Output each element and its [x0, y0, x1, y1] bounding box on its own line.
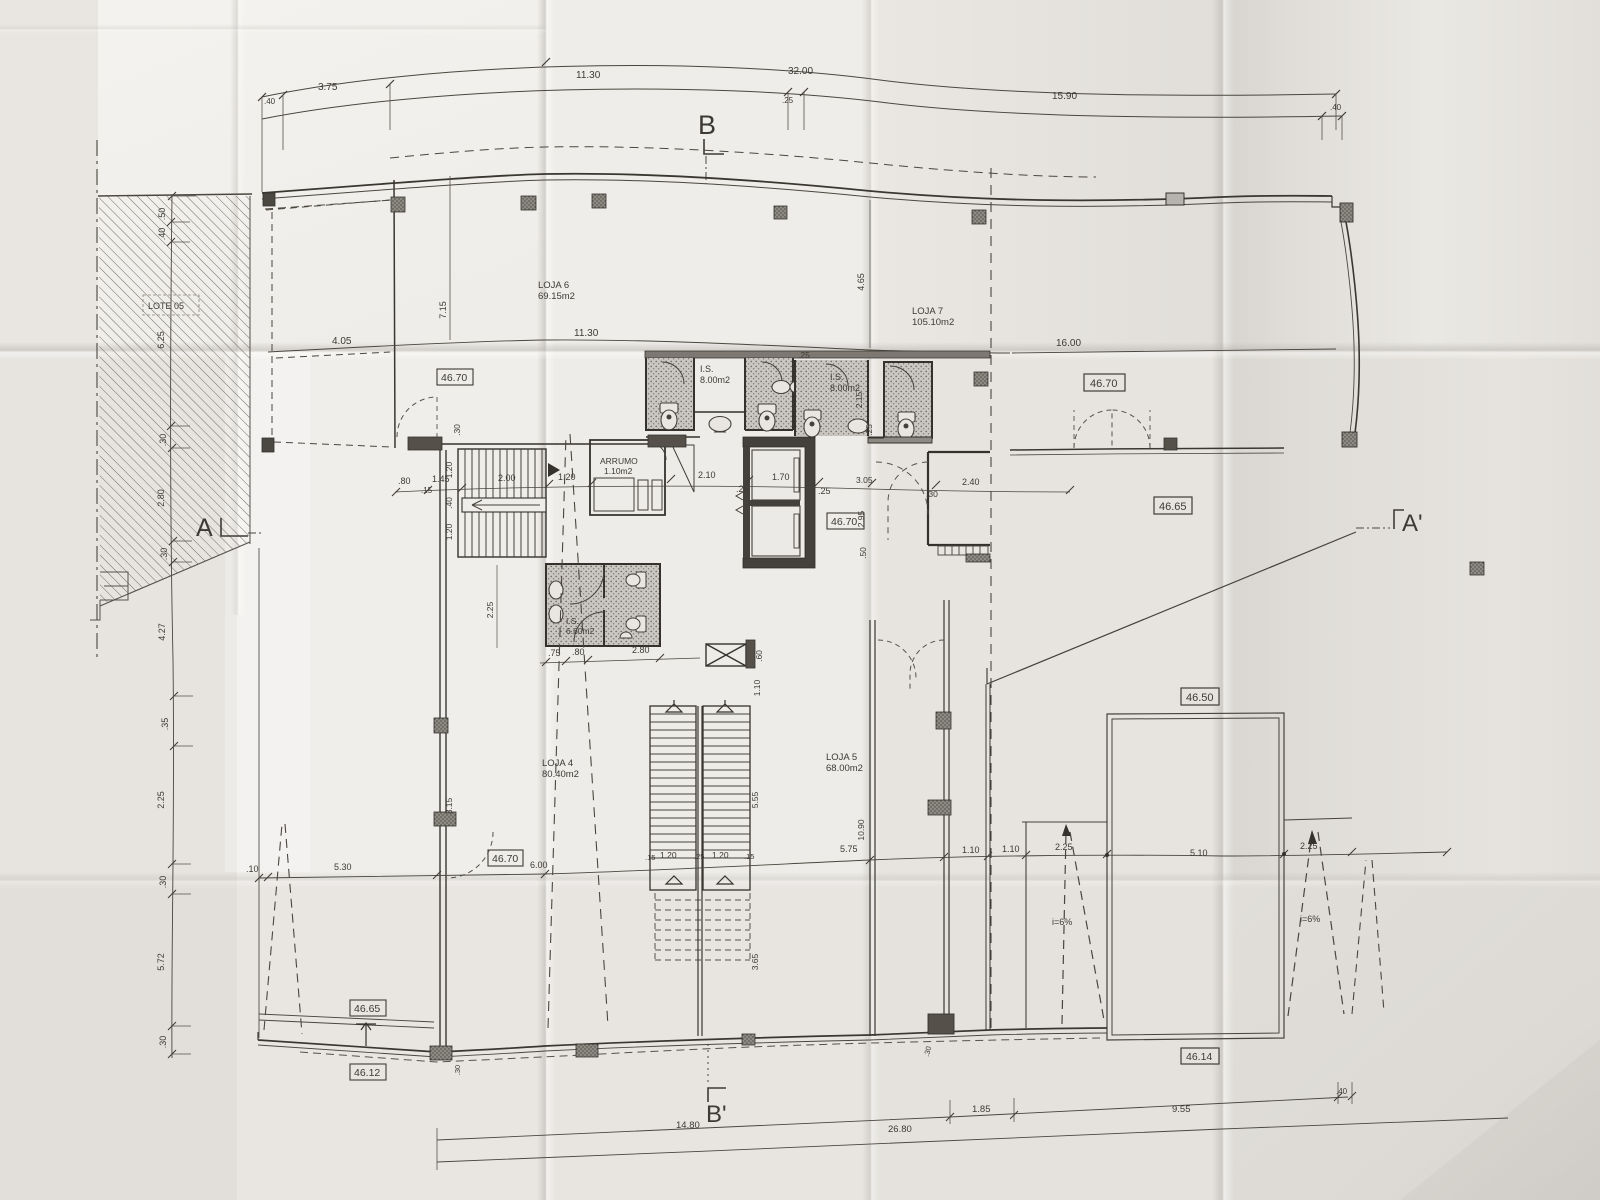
svg-text:5.30: 5.30 — [334, 862, 352, 872]
svg-text:26.80: 26.80 — [888, 1124, 912, 1135]
svg-text:46.70: 46.70 — [441, 372, 467, 384]
svg-text:11.30: 11.30 — [576, 70, 601, 81]
svg-text:6.60m2: 6.60m2 — [566, 626, 595, 636]
svg-text:46.65: 46.65 — [354, 1003, 380, 1015]
svg-text:2.25: 2.25 — [1055, 842, 1073, 852]
svg-text:4.05: 4.05 — [332, 336, 352, 347]
svg-text:68.00m2: 68.00m2 — [826, 763, 863, 774]
svg-text:8.00m2: 8.00m2 — [830, 383, 860, 393]
svg-text:80.40m2: 80.40m2 — [542, 769, 579, 780]
svg-text:.40: .40 — [264, 97, 276, 106]
svg-text:.15: .15 — [421, 486, 433, 495]
svg-text:32.00: 32.00 — [788, 66, 813, 77]
svg-text:2.00: 2.00 — [498, 473, 516, 483]
svg-text:14.80: 14.80 — [676, 1120, 700, 1131]
svg-text:i=6%: i=6% — [1052, 917, 1072, 927]
svg-text:5.75: 5.75 — [840, 844, 858, 854]
svg-text:.40: .40 — [1336, 1087, 1348, 1096]
svg-text:.30: .30 — [158, 1036, 168, 1049]
svg-text:2.25: 2.25 — [485, 601, 495, 618]
svg-text:16.00: 16.00 — [1056, 338, 1081, 349]
svg-text:LOJA 7: LOJA 7 — [912, 306, 943, 317]
svg-text:LOTE 05: LOTE 05 — [148, 301, 184, 311]
svg-text:.80: .80 — [572, 647, 585, 657]
svg-text:.35: .35 — [160, 718, 170, 731]
svg-text:8.00m2: 8.00m2 — [700, 375, 730, 385]
svg-text:1.10: 1.10 — [752, 679, 762, 696]
svg-text:.30: .30 — [452, 424, 462, 436]
svg-text:5.10: 5.10 — [1190, 848, 1208, 858]
svg-text:LOJA 6: LOJA 6 — [538, 280, 569, 291]
svg-text:1.10: 1.10 — [962, 845, 980, 855]
svg-text:2.25: 2.25 — [156, 791, 166, 809]
svg-text:1.10m2: 1.10m2 — [604, 466, 633, 476]
svg-text:.30: .30 — [158, 876, 168, 889]
svg-text:6.25: 6.25 — [156, 331, 166, 349]
svg-text:7.15: 7.15 — [438, 301, 448, 319]
svg-text:.15: .15 — [744, 852, 754, 861]
svg-text:i=6%: i=6% — [1300, 914, 1320, 924]
svg-text:LOJA 4: LOJA 4 — [542, 758, 573, 769]
svg-text:.30: .30 — [926, 489, 938, 499]
svg-text:.30: .30 — [158, 434, 168, 447]
svg-text:1.70: 1.70 — [772, 472, 790, 482]
svg-text:2.95: 2.95 — [856, 510, 866, 527]
svg-text:A: A — [196, 514, 213, 542]
svg-text:2.25: 2.25 — [1300, 841, 1318, 851]
svg-text:46.70: 46.70 — [1090, 378, 1118, 390]
svg-text:.40: .40 — [157, 228, 167, 241]
svg-text:.60: .60 — [754, 650, 764, 662]
svg-text:2.15: 2.15 — [854, 391, 864, 408]
svg-text:I.S.: I.S. — [566, 616, 579, 626]
svg-text:5.55: 5.55 — [750, 791, 760, 808]
svg-text:.80: .80 — [398, 476, 411, 486]
svg-text:1.10: 1.10 — [1002, 844, 1020, 854]
svg-text:LOJA 5: LOJA 5 — [826, 752, 857, 763]
svg-text:1.85: 1.85 — [972, 1104, 991, 1115]
svg-text:11.30: 11.30 — [574, 328, 599, 339]
svg-text:10.90: 10.90 — [856, 819, 866, 841]
svg-text:.30: .30 — [453, 1065, 462, 1075]
svg-text:.25: .25 — [818, 486, 831, 496]
svg-text:5.72: 5.72 — [156, 953, 166, 971]
svg-text:.50: .50 — [157, 208, 167, 221]
svg-text:1.20: 1.20 — [712, 850, 729, 860]
svg-text:.50: .50 — [858, 547, 868, 559]
svg-text:3.05: 3.05 — [856, 475, 873, 485]
svg-text:46.70: 46.70 — [492, 853, 518, 865]
svg-text:I.S.: I.S. — [830, 372, 844, 382]
svg-text:B: B — [698, 110, 716, 140]
svg-text:2.80: 2.80 — [156, 489, 166, 507]
svg-text:B': B' — [706, 1101, 727, 1128]
svg-text:3.65: 3.65 — [750, 953, 760, 970]
svg-text:2.40: 2.40 — [962, 477, 980, 487]
svg-text:3.15: 3.15 — [444, 797, 454, 814]
svg-text:.25: .25 — [782, 96, 794, 105]
svg-text:I.S.: I.S. — [700, 364, 714, 374]
svg-text:4.65: 4.65 — [856, 273, 866, 291]
svg-text:4.27: 4.27 — [157, 623, 167, 641]
svg-text:46.14: 46.14 — [1186, 1051, 1212, 1063]
svg-text:.40: .40 — [1330, 103, 1342, 112]
svg-text:9.55: 9.55 — [1172, 1104, 1191, 1115]
svg-text:.10: .10 — [246, 864, 259, 874]
svg-text:.25: .25 — [736, 484, 749, 494]
svg-text:2.80: 2.80 — [632, 645, 650, 655]
svg-text:.25: .25 — [694, 852, 704, 861]
svg-text:.75: .75 — [548, 648, 561, 658]
svg-text:69.15m2: 69.15m2 — [538, 291, 575, 302]
svg-text:.15: .15 — [645, 853, 655, 862]
svg-text:46.12: 46.12 — [354, 1067, 380, 1079]
svg-text:15.90: 15.90 — [1052, 91, 1077, 102]
svg-text:46.70: 46.70 — [831, 516, 857, 528]
svg-text:A': A' — [1402, 510, 1423, 537]
svg-text:.25: .25 — [798, 350, 810, 360]
svg-text:3.75: 3.75 — [318, 82, 338, 93]
svg-text:1.20: 1.20 — [660, 850, 677, 860]
svg-text:.30: .30 — [159, 548, 169, 561]
svg-text:.25: .25 — [864, 424, 874, 436]
svg-text:ARRUMO: ARRUMO — [600, 456, 638, 466]
svg-text:105.10m2: 105.10m2 — [912, 317, 954, 328]
svg-text:6.00: 6.00 — [530, 860, 548, 870]
svg-text:46.50: 46.50 — [1186, 692, 1214, 704]
svg-text:46.65: 46.65 — [1159, 501, 1187, 513]
svg-text:2.10: 2.10 — [698, 470, 716, 480]
